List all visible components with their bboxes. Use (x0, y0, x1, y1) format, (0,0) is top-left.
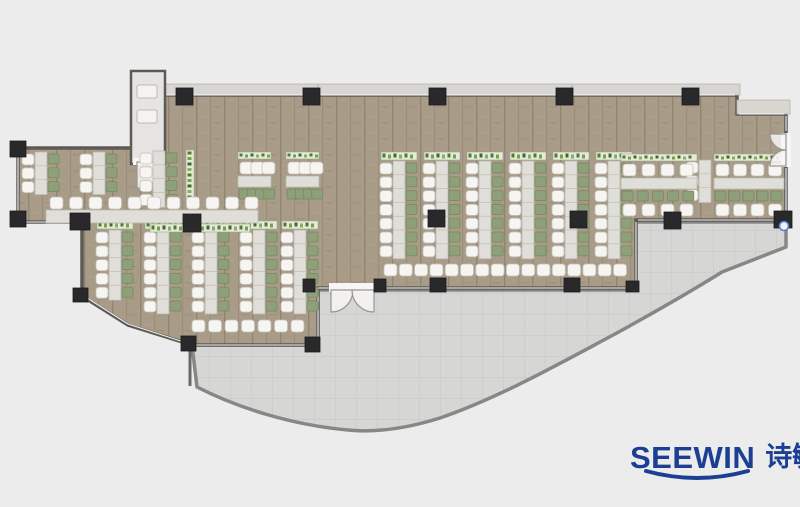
storage-cabinet (122, 246, 133, 256)
chair (595, 191, 607, 202)
chair (275, 320, 288, 332)
storage-cabinet (406, 246, 417, 256)
vestibule-fixture (137, 110, 157, 123)
storage-cabinet (307, 260, 318, 270)
plant (115, 224, 118, 228)
storage-cabinet (406, 218, 417, 228)
storage-cabinet (170, 246, 181, 256)
storage-cabinet (106, 154, 117, 164)
structural-column (303, 279, 315, 292)
desk (35, 152, 47, 195)
plant (716, 156, 719, 159)
chair (380, 177, 392, 188)
chair (144, 260, 156, 271)
chair (148, 197, 161, 209)
plant (614, 155, 617, 159)
storage-cabinet (621, 232, 632, 242)
structural-column (664, 212, 681, 229)
chair (466, 218, 478, 229)
storage-cabinet (307, 232, 318, 242)
window-ledge (163, 84, 740, 95)
plant (399, 155, 402, 159)
plant (603, 155, 606, 159)
plant (388, 155, 391, 159)
plant (727, 156, 730, 159)
chair (384, 264, 397, 276)
plant (496, 155, 499, 159)
plant (270, 224, 273, 228)
plant (299, 154, 302, 157)
plant (251, 154, 254, 157)
plant (431, 155, 434, 159)
chair (568, 264, 581, 276)
structural-column (181, 336, 196, 351)
plant (480, 154, 483, 158)
storage-cabinet (406, 232, 417, 242)
plant (179, 227, 182, 231)
storage-cabinet (578, 191, 589, 201)
plant (639, 157, 642, 160)
chair (96, 232, 108, 243)
chair (595, 204, 607, 215)
storage-cabinet (449, 163, 460, 173)
chair (716, 204, 729, 216)
storage-cabinet (122, 260, 133, 270)
storage-cabinet (406, 177, 417, 187)
chair (552, 163, 564, 174)
chair (70, 197, 83, 209)
chair (22, 182, 34, 193)
storage-cabinet (621, 218, 632, 228)
chair (380, 191, 392, 202)
desk (621, 178, 697, 189)
plant (207, 226, 210, 230)
plant (405, 154, 408, 158)
plant (245, 227, 248, 231)
chair (522, 264, 535, 276)
chair (380, 204, 392, 215)
storage-cabinet (166, 153, 177, 163)
chair (595, 246, 607, 257)
chair (281, 273, 293, 284)
chair (430, 264, 443, 276)
chair (642, 204, 655, 216)
plant (534, 154, 537, 158)
storage-cabinet (492, 163, 503, 173)
chair (144, 273, 156, 284)
plant (383, 154, 386, 158)
plant (295, 223, 298, 227)
chair (642, 164, 655, 176)
desk-row (96, 221, 133, 300)
plant (738, 156, 741, 159)
chair (552, 264, 565, 276)
storage-cabinet (535, 232, 546, 242)
chair (623, 204, 636, 216)
chair (225, 320, 238, 332)
plant (623, 156, 626, 159)
storage-cabinet (166, 181, 177, 191)
planter-strip (238, 152, 271, 159)
storage-cabinet (535, 163, 546, 173)
storage-cabinet (266, 301, 277, 311)
chair (240, 260, 252, 271)
desk (608, 161, 620, 259)
structural-column (430, 278, 446, 292)
chair (380, 218, 392, 229)
chair (552, 218, 564, 229)
storage-cabinet (535, 177, 546, 187)
chair (423, 177, 435, 188)
storage-cabinet (122, 232, 133, 242)
plant (218, 226, 221, 230)
storage-cabinet (312, 189, 323, 199)
storage-cabinet (170, 260, 181, 270)
storage-cabinet (218, 232, 229, 242)
chair (445, 264, 458, 276)
plant (265, 223, 268, 227)
chair (240, 246, 252, 257)
storage-cabinet (492, 177, 503, 187)
structural-column (626, 281, 639, 292)
plant (628, 157, 631, 160)
chair (242, 320, 255, 332)
plant (645, 156, 648, 159)
plant (491, 154, 494, 158)
plant (539, 155, 542, 159)
plant (672, 157, 675, 160)
chair (552, 191, 564, 202)
plant (523, 154, 526, 158)
plant (765, 157, 768, 160)
plant (188, 190, 192, 193)
chair (128, 197, 141, 209)
plant (437, 154, 440, 158)
structural-column (70, 213, 90, 230)
desk (699, 160, 711, 203)
structural-column (682, 88, 699, 105)
chair (258, 320, 271, 332)
survey-marker (780, 222, 789, 231)
storage-cabinet (652, 191, 663, 201)
structural-column (570, 211, 587, 228)
plant (448, 154, 451, 158)
plant (240, 226, 243, 230)
structural-column (10, 141, 26, 157)
plant (188, 163, 192, 166)
chair (96, 287, 108, 298)
chair (281, 287, 293, 298)
chair (537, 264, 550, 276)
structural-column (429, 88, 446, 105)
plant (288, 154, 291, 157)
chair (192, 232, 204, 243)
plant (517, 155, 520, 159)
storage-cabinet (578, 246, 589, 256)
storage-cabinet (266, 287, 277, 297)
chair (240, 273, 252, 284)
chair (209, 320, 222, 332)
plant (656, 156, 659, 159)
desk (393, 161, 405, 259)
chair (192, 320, 205, 332)
plant (223, 227, 226, 231)
plant (426, 154, 429, 158)
chair (734, 204, 747, 216)
storage-cabinet (578, 177, 589, 187)
desk (109, 230, 121, 300)
plant (760, 156, 763, 159)
chair (423, 246, 435, 257)
plant (469, 154, 472, 158)
storage-cabinet (406, 204, 417, 214)
storage-cabinet (449, 232, 460, 242)
storage-cabinet (535, 191, 546, 201)
chair (595, 218, 607, 229)
storage-cabinet (637, 191, 648, 201)
vestibule-fixture (137, 85, 157, 98)
plant (284, 223, 287, 227)
chair (262, 162, 275, 174)
chair (509, 204, 521, 215)
chair (399, 264, 412, 276)
storage-cabinet (266, 273, 277, 283)
chair (144, 301, 156, 312)
storage-cabinet (535, 204, 546, 214)
storage-cabinet (122, 287, 133, 297)
chair (281, 260, 293, 271)
desk (714, 178, 784, 189)
plant (212, 227, 215, 231)
storage-cabinet (170, 273, 181, 283)
chair (291, 320, 304, 332)
chair (466, 177, 478, 188)
chair (245, 197, 258, 209)
chair (281, 246, 293, 257)
plant (306, 223, 309, 227)
brand-logo: SEEWIN 诗敏 (630, 442, 800, 473)
storage-cabinet (757, 191, 768, 201)
chair (89, 197, 102, 209)
storage-cabinet (715, 191, 726, 201)
chair (509, 232, 521, 243)
storage-cabinet (449, 191, 460, 201)
plant (174, 226, 177, 230)
chair (140, 167, 152, 178)
storage-cabinet (170, 232, 181, 242)
plant (267, 155, 270, 158)
structural-column (10, 211, 26, 227)
storage-cabinet (743, 191, 754, 201)
desk (253, 230, 265, 314)
plant (245, 155, 248, 158)
chair (144, 287, 156, 298)
chair (509, 246, 521, 257)
office-floorplan (0, 0, 800, 507)
planter-strip (286, 152, 319, 159)
chair (423, 163, 435, 174)
storage-cabinet (535, 218, 546, 228)
plant (394, 154, 397, 158)
chair (281, 232, 293, 243)
desk-row (80, 152, 117, 195)
storage-cabinet (170, 287, 181, 297)
plant (571, 155, 574, 159)
chair (240, 287, 252, 298)
storage-cabinet (492, 232, 503, 242)
storage-cabinet (771, 191, 782, 201)
chair (80, 168, 92, 179)
chair (206, 197, 219, 209)
chair (509, 218, 521, 229)
plant (560, 155, 563, 159)
desk-row (22, 152, 59, 195)
storage-cabinet (266, 260, 277, 270)
chair (310, 162, 323, 174)
storage-cabinet (449, 204, 460, 214)
chair (281, 301, 293, 312)
plant (749, 156, 752, 159)
chair (96, 273, 108, 284)
desk (294, 230, 306, 314)
plant (667, 156, 670, 159)
plant (485, 155, 488, 159)
structural-column (305, 337, 320, 352)
plant (453, 155, 456, 159)
plant (566, 154, 569, 158)
plant (678, 156, 681, 159)
plant (754, 157, 757, 160)
chair (380, 246, 392, 257)
plant (163, 226, 166, 230)
chair (552, 177, 564, 188)
desk (286, 176, 319, 187)
chair (22, 168, 34, 179)
structural-column (556, 88, 573, 105)
storage-cabinet (683, 191, 694, 201)
chair (661, 164, 674, 176)
plant (259, 224, 262, 228)
chair (96, 260, 108, 271)
chair (680, 164, 693, 176)
plant (577, 154, 580, 158)
storage-cabinet (622, 191, 633, 201)
plant (157, 227, 160, 231)
chair (380, 232, 392, 243)
desk (205, 230, 217, 314)
chair (716, 164, 729, 176)
chair (509, 163, 521, 174)
plant (201, 227, 204, 231)
plant (300, 224, 303, 228)
storage-cabinet (218, 301, 229, 311)
plant (683, 157, 686, 160)
chair (192, 287, 204, 298)
chair (466, 246, 478, 257)
storage-cabinet (218, 273, 229, 283)
chair (240, 232, 252, 243)
chair (423, 191, 435, 202)
plant (555, 154, 558, 158)
storage-cabinet (449, 218, 460, 228)
structural-column (176, 88, 193, 105)
plant (650, 157, 653, 160)
plant (315, 155, 318, 158)
chair (144, 246, 156, 257)
storage-cabinet (307, 246, 318, 256)
chair (506, 264, 519, 276)
plant (743, 157, 746, 160)
chair (140, 153, 152, 164)
plant (168, 227, 171, 231)
chair (552, 204, 564, 215)
chair (461, 264, 474, 276)
chair (583, 264, 596, 276)
chair (423, 232, 435, 243)
chair (192, 273, 204, 284)
storage-cabinet (266, 232, 277, 242)
storage-cabinet (106, 182, 117, 192)
storage-cabinet (122, 273, 133, 283)
chair (552, 246, 564, 257)
chair (595, 232, 607, 243)
chair (50, 197, 63, 209)
chair (466, 191, 478, 202)
plant (293, 155, 296, 158)
plant (234, 227, 237, 231)
structural-column (374, 279, 386, 292)
chair (466, 232, 478, 243)
plant (311, 224, 314, 228)
storage-cabinet (578, 163, 589, 173)
storage-cabinet (106, 168, 117, 178)
storage-cabinet (266, 246, 277, 256)
plant (689, 156, 692, 159)
chair (466, 204, 478, 215)
chair (598, 264, 611, 276)
desk (522, 161, 534, 259)
desk (157, 230, 169, 314)
plant (262, 154, 265, 157)
chair (415, 264, 428, 276)
storage-cabinet (48, 182, 59, 192)
storage-cabinet (264, 189, 275, 199)
chair (509, 191, 521, 202)
plant (598, 154, 601, 158)
desk (565, 161, 577, 259)
chair (614, 264, 627, 276)
structural-column (303, 88, 320, 105)
plant (126, 224, 129, 228)
plant (310, 154, 313, 157)
floorplan-canvas: SEEWIN 诗敏 (0, 0, 800, 507)
storage-cabinet (406, 191, 417, 201)
plant (609, 154, 612, 158)
plant (229, 226, 232, 230)
plant (474, 155, 477, 159)
chair (552, 232, 564, 243)
plant (188, 174, 192, 177)
chair (192, 246, 204, 257)
storage-cabinet (492, 246, 503, 256)
plant (188, 179, 192, 182)
storage-cabinet (449, 177, 460, 187)
plant (104, 224, 107, 228)
storage-cabinet (218, 287, 229, 297)
chair (595, 163, 607, 174)
brand-logo-cn: 诗敏 (765, 442, 800, 473)
plant (442, 155, 445, 159)
